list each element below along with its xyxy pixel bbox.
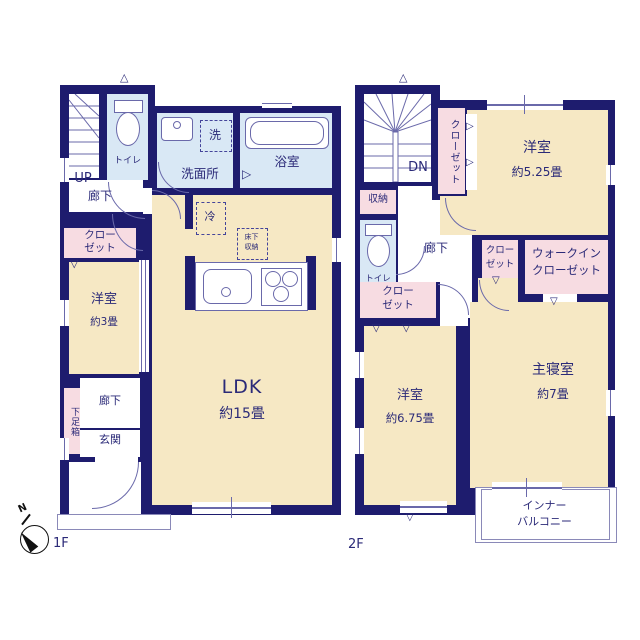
master-size-label: 約7畳	[523, 387, 583, 401]
stair-direction-label-1f: UP	[66, 171, 100, 187]
bedroom525-name-label: 洋室	[507, 140, 567, 157]
closet-vertical-label-2f: クローゼット	[444, 112, 459, 192]
closet-hall-line1: クロー	[382, 285, 414, 297]
closet-door-mark: ▽	[402, 322, 410, 333]
window-tick	[526, 478, 527, 497]
floor2-label: 2F	[348, 537, 378, 553]
window-1f-bath-top	[262, 99, 292, 108]
floorplan-canvas: △ ▷ ▽ UP 廊下 トイレ 洗 洗面所 浴室 クロー ゼット 洋室 約3畳 …	[0, 0, 640, 640]
door-gap-bedroom525	[432, 200, 440, 230]
toilet-bowl-icon-1f	[116, 112, 140, 146]
window-tick	[231, 497, 232, 518]
closet-door-mark: ▷	[466, 122, 474, 132]
entrance-door-gap	[95, 453, 138, 462]
stair-treads-1f	[69, 94, 99, 178]
bedroom3-size-label: 約3畳	[77, 316, 131, 329]
closet-label-1f: クロー ゼット	[64, 229, 136, 254]
window-2f-east-master	[606, 390, 615, 416]
bedroom675-name-label: 洋室	[380, 388, 440, 404]
kitchen-sink-drain-icon	[221, 287, 231, 297]
wall-1f-porch-left	[60, 455, 69, 515]
window-2f-west-bedroom675-a	[355, 352, 364, 378]
fridge-label: 冷	[196, 210, 224, 223]
staircase-1f	[69, 94, 99, 178]
porch-step	[57, 514, 171, 530]
stove-burner-icon	[273, 286, 289, 302]
walkin-closet-line2: クローゼット	[532, 263, 601, 277]
closet-small-line1: クロー	[486, 245, 515, 256]
closet-small-line2: ゼット	[486, 259, 515, 270]
stove-burner-icon	[265, 271, 281, 287]
window-2f-west-bedroom675-b	[355, 428, 364, 454]
bedroom3-name-label: 洋室	[79, 292, 129, 308]
closet-hall-label-2f: クロー ゼット	[360, 284, 436, 312]
entrance-label: 玄関	[86, 433, 134, 446]
kitchen-counter-cap-left	[185, 256, 195, 310]
toilet-label-1f: トイレ	[107, 156, 148, 167]
window-tick	[524, 95, 525, 114]
hall-lower-label-1f: 廊下	[86, 394, 134, 407]
window-2f-north-bedroom525	[487, 100, 563, 110]
walkin-closet-line1: ウォークイン	[532, 246, 601, 260]
ldk-name-label: LDK	[202, 376, 282, 399]
underfloor-label: 床下 収納	[237, 233, 266, 253]
stove-burner-icon	[282, 271, 298, 287]
closet-label-line1: クロー	[84, 229, 116, 241]
walkin-closet-opening	[543, 294, 577, 302]
closet-door-mark-1f: ▽	[70, 258, 78, 269]
compass: N	[12, 503, 60, 559]
bath-door-mark: ▷	[242, 168, 251, 180]
closet-door-mark: ▷	[466, 158, 474, 168]
inner-balcony-line1: インナー	[523, 499, 567, 512]
door-gap-bedroom675	[440, 318, 468, 326]
underfloor-line1: 床下	[245, 233, 259, 241]
closet-label-line2: ゼット	[84, 242, 116, 254]
hall-upper-label-1f: 廊下	[76, 189, 124, 203]
closet-door-mark: ▽	[492, 276, 500, 286]
ldk-size-label: 約15畳	[202, 406, 282, 423]
vent-mark-south-675: ▽	[406, 513, 414, 523]
wall-stub-kitchen-top	[185, 195, 193, 229]
closet-small-label-2f: クロー ゼット	[480, 244, 520, 273]
stair-direction-label-2f: DN	[398, 160, 438, 176]
wall-1f-porch-right	[141, 455, 150, 515]
shoe-box-label: 下足箱	[66, 392, 79, 452]
bedroom525-size-label: 約5.25畳	[497, 165, 577, 179]
sliding-door-line	[141, 260, 142, 372]
master-name-label: 主寝室	[523, 362, 583, 379]
bedroom675-size-label: 約6.75畳	[372, 412, 448, 426]
inner-balcony-line2: バルコニー	[517, 515, 572, 528]
closet-door-mark: ▽	[372, 322, 380, 333]
vent-mark-stair-top-2f: △	[399, 72, 407, 83]
window-2f-master-balcony	[492, 482, 562, 494]
toilet-bowl-icon-2f	[367, 235, 390, 267]
toilet-label-2f: トイレ	[360, 274, 396, 284]
storage-label-2f: 収納	[360, 194, 396, 206]
window-2f-east-bedroom525	[606, 165, 615, 185]
walkin-closet-label: ウォークイン クローゼット	[525, 245, 608, 280]
hall-label-2f: 廊下	[410, 241, 462, 255]
window-1f-west-bedroom3	[60, 300, 69, 326]
inner-balcony-label: インナー バルコニー	[481, 498, 608, 530]
washer-label: 洗	[200, 128, 230, 142]
washroom-label: 洗面所	[165, 166, 235, 181]
vent-mark-toilet-top: △	[120, 72, 128, 83]
closet-hall-line2: ゼット	[382, 299, 414, 311]
closet-door-mark: ▽	[550, 297, 558, 307]
sliding-door-line	[145, 260, 146, 372]
sliding-door-bedroom3	[139, 260, 149, 372]
underfloor-line2: 収納	[245, 243, 259, 251]
window-1f-east-ldk	[332, 238, 341, 262]
washbasin-tap-icon	[173, 121, 181, 129]
bath-label: 浴室	[261, 154, 313, 169]
bathtub-inner-icon	[250, 121, 324, 145]
